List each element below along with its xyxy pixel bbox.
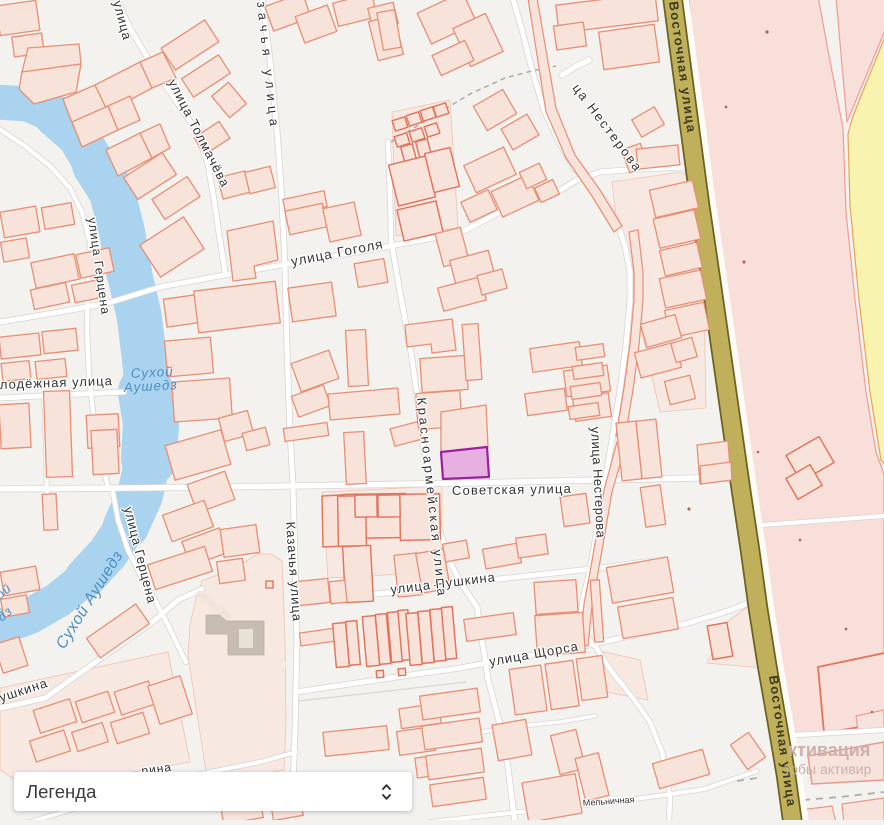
- svg-text:Советская улица: Советская улица: [452, 481, 572, 498]
- svg-text:Аушедз: Аушедз: [122, 377, 178, 395]
- svg-text:тобы активир: тобы активир: [784, 761, 872, 777]
- svg-text:ктивация: ктивация: [788, 740, 870, 760]
